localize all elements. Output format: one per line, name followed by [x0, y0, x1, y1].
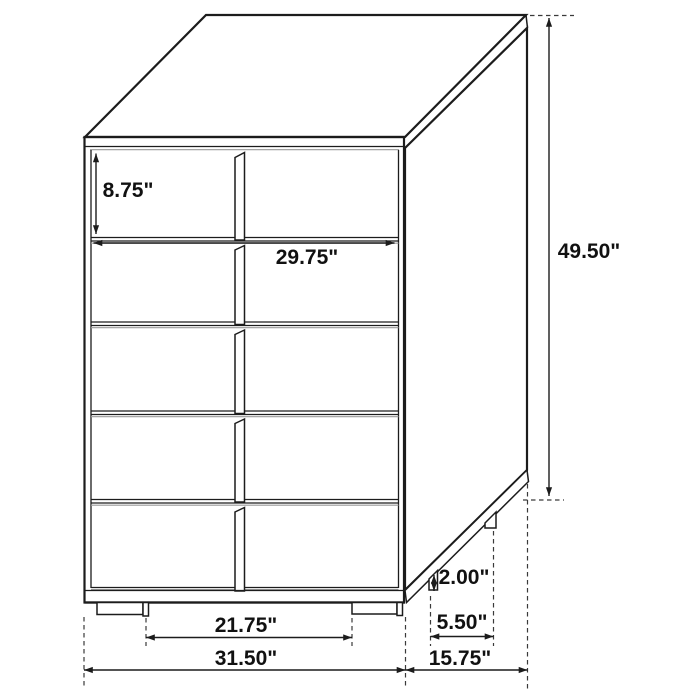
drawer-handles [235, 153, 245, 592]
drawer-handle-row4 [235, 419, 245, 502]
chest-body [85, 15, 529, 616]
right-front-foot-return [397, 603, 403, 616]
drawer-handle-row3 [235, 330, 245, 414]
dimension-front-foot-spacing: 21.75" [146, 614, 352, 638]
right-front-foot [352, 603, 397, 615]
dimension-label-overall-depth: 15.75" [429, 647, 492, 670]
dimension-overall-depth: 15.75" [406, 647, 528, 670]
dimension-label-foot-height: 2.00" [439, 566, 490, 589]
dimension-label-front-foot-spacing: 21.75" [215, 614, 278, 637]
dimension-label-top-drawer-height: 8.75" [103, 179, 154, 202]
drawer-handle-row5 [235, 508, 245, 592]
dimension-label-side-foot-spacing: 5.50" [437, 611, 488, 634]
left-front-foot-return [143, 603, 149, 617]
furniture-dimension-diagram: 8.75" 29.75" 49.50" 2.00" 5.50" 21.75" 3… [0, 0, 700, 700]
top-back-corner-edge [526, 15, 528, 28]
front-plinth [85, 591, 406, 603]
dimension-side-foot-spacing: 5.50" [431, 611, 494, 637]
left-front-foot [97, 603, 143, 615]
drawer-handle-row1 [235, 153, 245, 241]
dimension-overall-height: 49.50" [549, 18, 620, 496]
dimension-foot-height: 2.00" [434, 566, 489, 591]
chest-front-face [85, 137, 406, 616]
chest-dimension-drawing: 8.75" 29.75" 49.50" 2.00" 5.50" 21.75" 3… [0, 0, 700, 700]
dimension-label-drawer-width: 29.75" [276, 246, 339, 269]
dimension-label-overall-height: 49.50" [558, 240, 621, 263]
drawer-handle-row2 [235, 246, 245, 325]
dimension-label-overall-width: 31.50" [215, 647, 278, 670]
dimension-overall-width: 31.50" [84, 647, 406, 670]
dimension-top-drawer-height: 8.75" [96, 154, 153, 235]
